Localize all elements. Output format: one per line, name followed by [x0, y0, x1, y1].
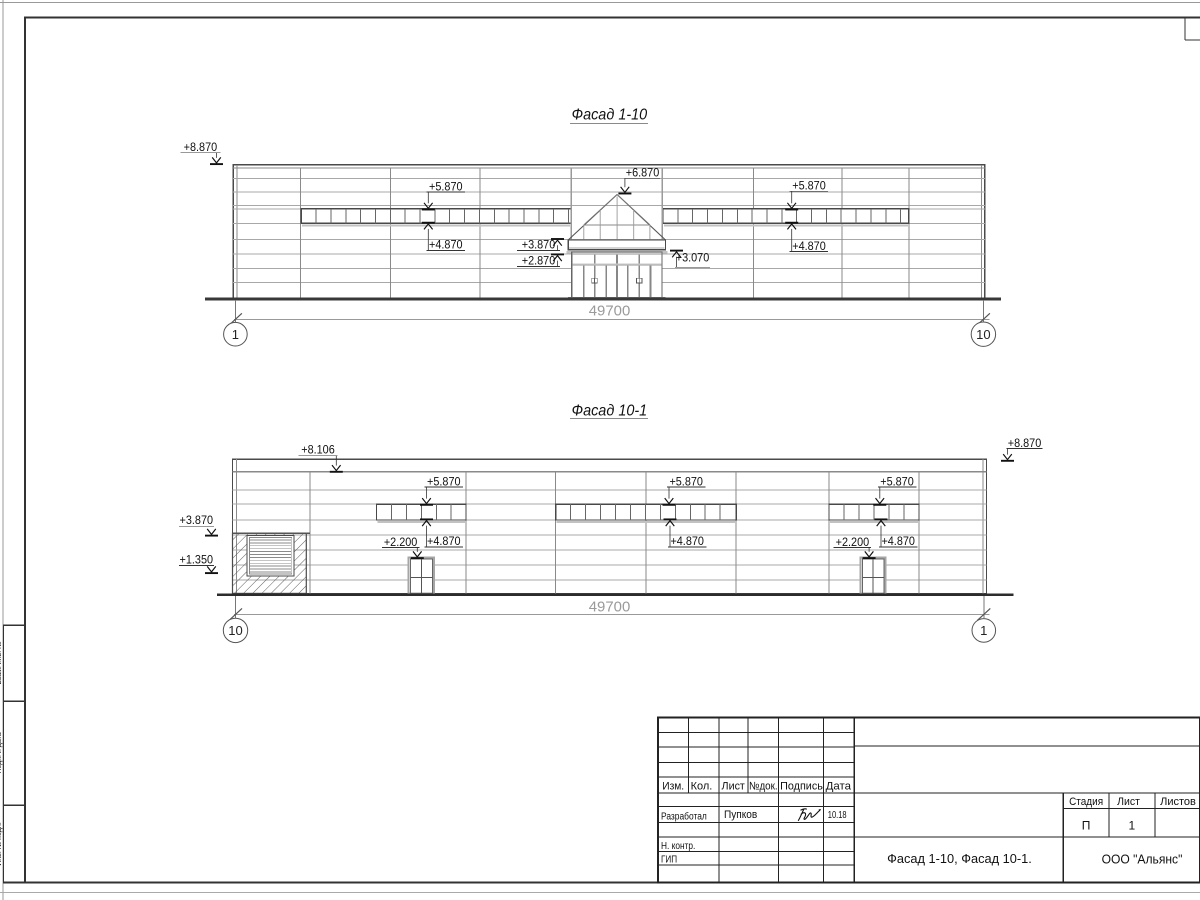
- svg-text:+6.870: +6.870: [626, 166, 660, 180]
- svg-text:+5.870: +5.870: [792, 179, 826, 193]
- svg-text:1: 1: [1129, 819, 1136, 833]
- svg-text:+4.870: +4.870: [881, 534, 915, 548]
- svg-text:+8.870: +8.870: [1008, 436, 1042, 450]
- svg-text:49700: 49700: [589, 598, 631, 615]
- svg-text:10.18: 10.18: [828, 810, 847, 821]
- svg-text:1: 1: [980, 623, 987, 638]
- svg-text:Н. контр.: Н. контр.: [661, 841, 695, 852]
- svg-text:+8.870: +8.870: [184, 140, 218, 154]
- svg-text:Лист: Лист: [1117, 796, 1140, 808]
- svg-text:+4.870: +4.870: [792, 239, 826, 253]
- svg-text:П: П: [1082, 819, 1091, 833]
- svg-text:+3.870: +3.870: [522, 238, 556, 252]
- svg-text:1: 1: [232, 327, 239, 342]
- svg-text:Фасад 10-1: Фасад 10-1: [572, 403, 648, 420]
- svg-text:+5.870: +5.870: [427, 474, 461, 488]
- svg-text:+5.870: +5.870: [669, 474, 703, 488]
- svg-text:+5.870: +5.870: [429, 179, 463, 193]
- svg-text:+4.870: +4.870: [670, 534, 704, 548]
- svg-text:Кол.: Кол.: [691, 781, 713, 793]
- svg-text:+3.070: +3.070: [676, 251, 710, 265]
- svg-text:Листов: Листов: [1160, 796, 1196, 808]
- svg-text:10: 10: [228, 623, 242, 638]
- svg-text:+2.200: +2.200: [384, 535, 418, 549]
- svg-text:ООО "Альянс": ООО "Альянс": [1102, 852, 1183, 867]
- svg-text:+4.870: +4.870: [429, 238, 463, 252]
- svg-text:+2.870: +2.870: [522, 253, 556, 267]
- svg-text:Инв. № подл.: Инв. № подл.: [0, 822, 3, 866]
- svg-text:№док.: №док.: [749, 781, 778, 793]
- svg-text:Лист: Лист: [722, 781, 745, 793]
- svg-text:+5.870: +5.870: [880, 474, 914, 488]
- svg-text:+3.870: +3.870: [180, 513, 214, 527]
- svg-text:Дата: Дата: [826, 781, 852, 793]
- svg-text:Подп. и дата: Подп. и дата: [0, 732, 3, 773]
- svg-text:Взам. инв. №: Взам. инв. №: [0, 641, 3, 684]
- svg-text:Подпись: Подпись: [780, 781, 823, 793]
- svg-text:Разработал: Разработал: [661, 810, 707, 822]
- svg-text:Стадия: Стадия: [1069, 796, 1103, 808]
- svg-text:+4.870: +4.870: [427, 534, 461, 548]
- svg-text:10: 10: [976, 327, 990, 342]
- svg-text:Изм.: Изм.: [662, 781, 684, 793]
- svg-text:+8.106: +8.106: [301, 442, 335, 456]
- svg-text:+2.200: +2.200: [836, 535, 870, 549]
- svg-text:Фасад 1-10: Фасад 1-10: [572, 107, 648, 124]
- svg-text:Пупков: Пупков: [724, 809, 757, 821]
- svg-text:+1.350: +1.350: [180, 553, 214, 567]
- svg-text:Фасад 1-10, Фасад 10-1.: Фасад 1-10, Фасад 10-1.: [887, 851, 1032, 866]
- svg-text:49700: 49700: [589, 302, 631, 319]
- svg-text:ГИП: ГИП: [661, 854, 677, 866]
